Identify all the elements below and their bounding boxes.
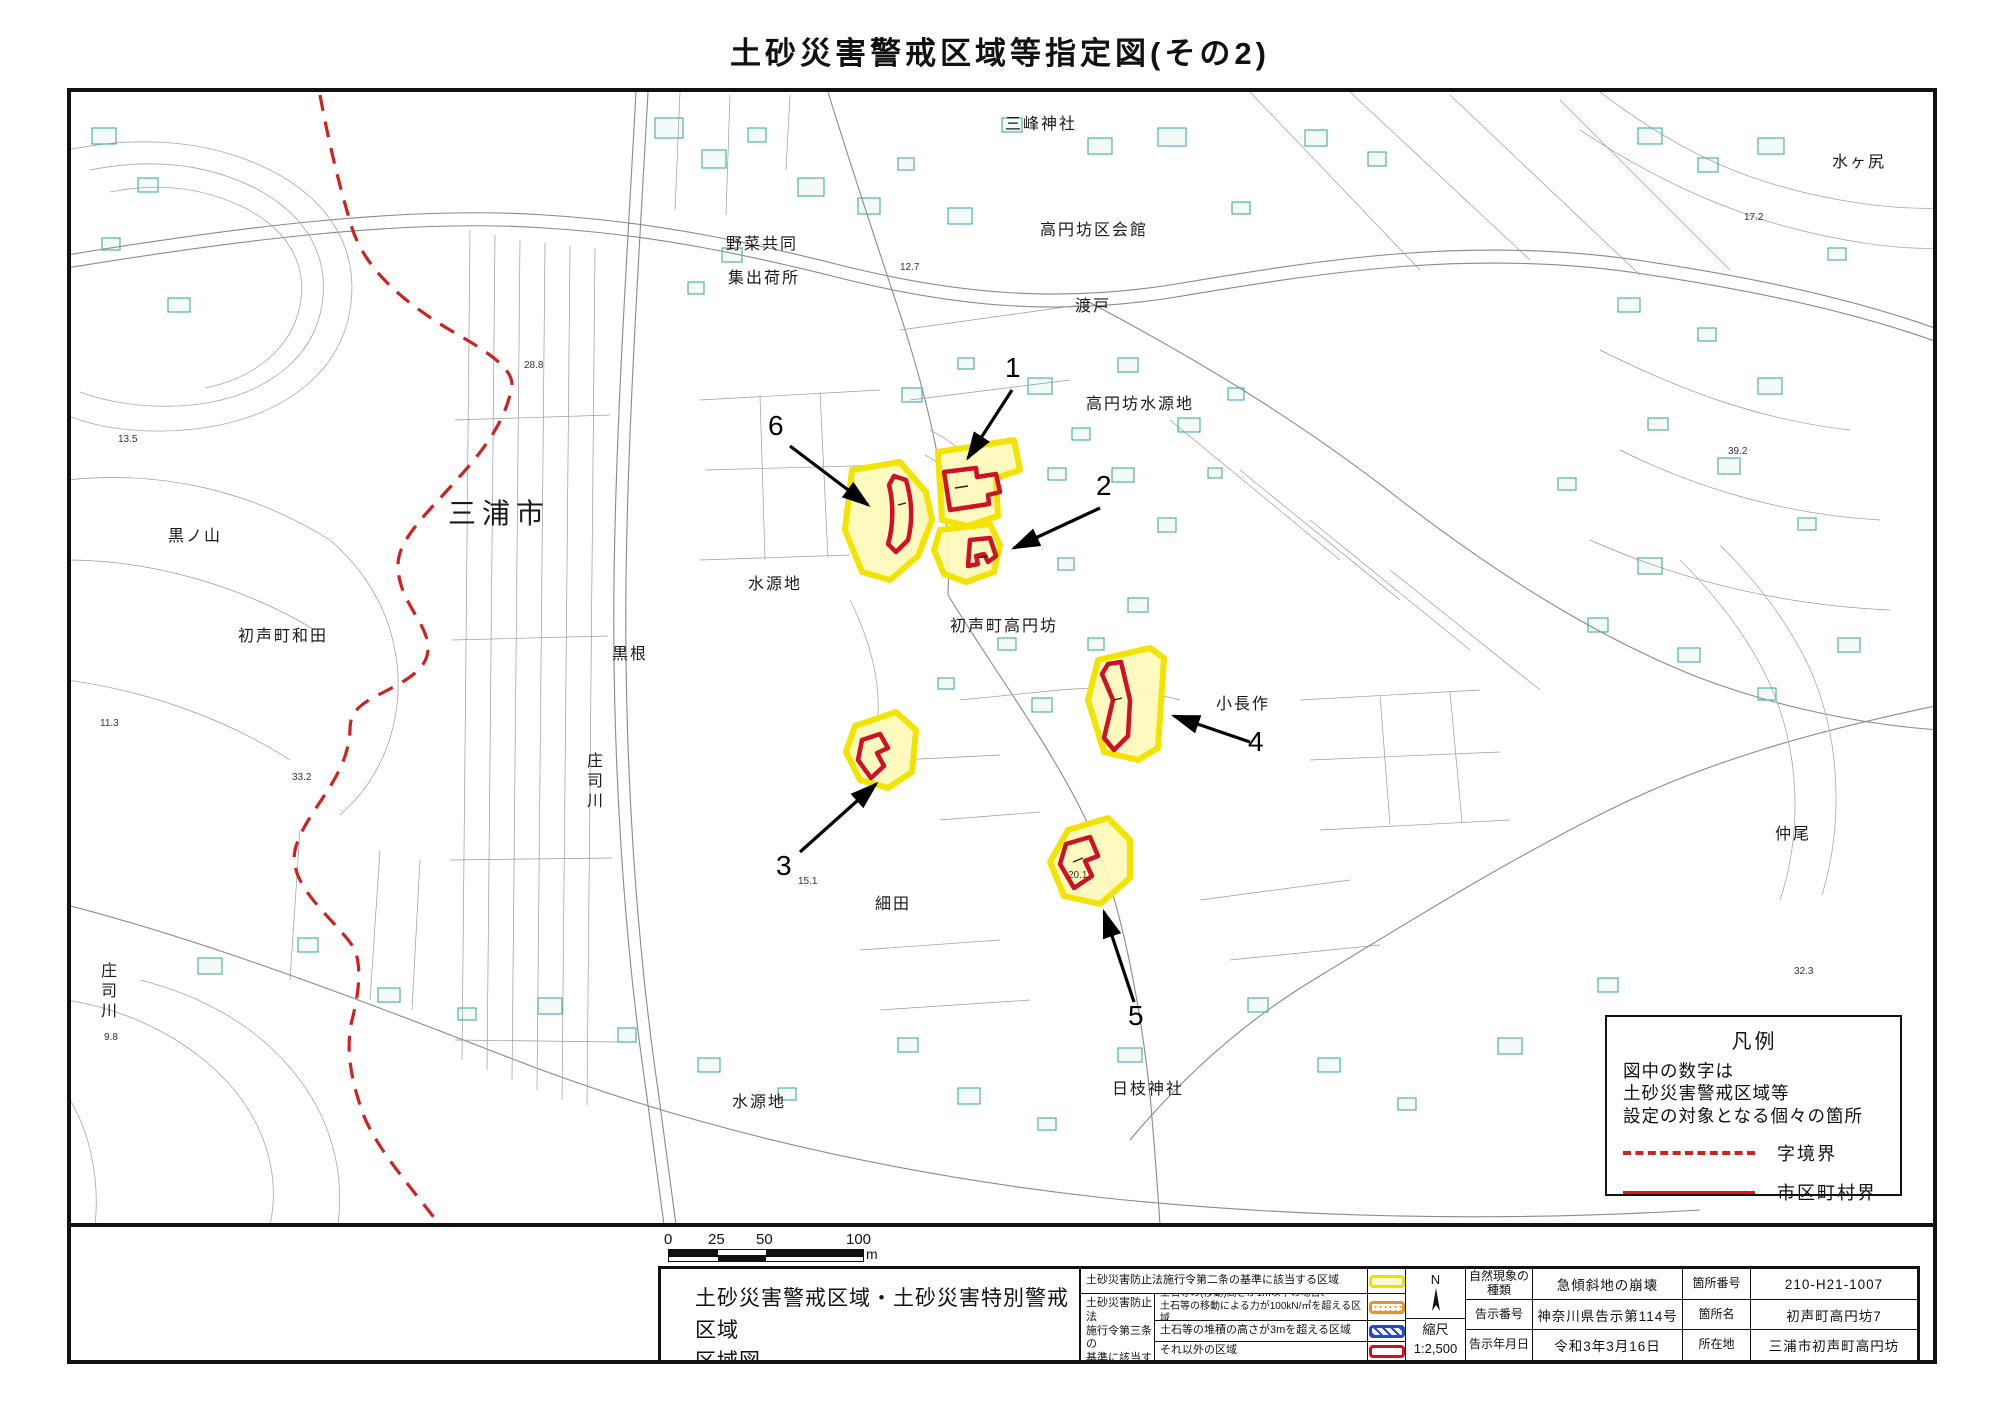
legend-law3-row3-label: それ以外の区域 bbox=[1155, 1342, 1367, 1360]
meta-label-notice-number: 告示番号 bbox=[1465, 1300, 1533, 1330]
municipal-boundary-label: 市区町村界 bbox=[1777, 1179, 1877, 1205]
orange-dotted-swatch bbox=[1369, 1301, 1405, 1314]
legend-law3-row1-label: 土石等の(移動)高さが1m以下の場合、 土石等の移動による力が100kN/㎡を超… bbox=[1155, 1294, 1367, 1321]
aza-boundary-label: 字境界 bbox=[1777, 1140, 1837, 1166]
spot-elevation: 9.8 bbox=[104, 1032, 118, 1043]
map-title-cell: 土砂災害警戒区域・土砂災害特別警戒区域 区域図 bbox=[661, 1269, 1081, 1360]
place-label-kuronoyama: 黒ノ山 bbox=[168, 522, 222, 546]
title-block-table: 土砂災害警戒区域・土砂災害特別警戒区域 区域図 土砂災害防止法施行令第二条の基準… bbox=[658, 1266, 1920, 1363]
legend-law2-swatch-cell bbox=[1367, 1269, 1405, 1294]
legend-law3-row3-swatch-cell bbox=[1367, 1342, 1405, 1360]
legend-law3-row1-swatch-cell bbox=[1367, 1294, 1405, 1321]
spot-elevation: 32.3 bbox=[1794, 966, 1813, 977]
scale-tick-50: 50 bbox=[756, 1231, 773, 1248]
meta-value-site-number: 210-H21-1007 bbox=[1751, 1269, 1917, 1300]
place-label-miura-shi: 三浦市 bbox=[448, 492, 550, 532]
place-label-nakao: 仲尾 bbox=[1775, 820, 1811, 844]
legend-title: 凡例 bbox=[1623, 1025, 1886, 1054]
zone-marker-1: 1 bbox=[1005, 352, 1021, 384]
place-label-hassemachi-wada: 初声町和田 bbox=[238, 622, 328, 646]
spot-elevation: 28.8 bbox=[524, 360, 543, 371]
spot-elevation: 11.3 bbox=[100, 718, 119, 729]
place-label-suigenchi-mid: 水源地 bbox=[748, 570, 802, 594]
page-title: 土砂災害警戒区域等指定図(その2) bbox=[0, 28, 2000, 73]
spot-elevation: 39.2 bbox=[1728, 446, 1747, 457]
place-label-kurone: 黒根 bbox=[612, 640, 648, 664]
legend-law3-group-label: 土砂災害防止法 施行令第三条の 基準に該当する 区域 bbox=[1081, 1294, 1155, 1360]
map-title-line1: 土砂災害警戒区域・土砂災害特別警戒区域 bbox=[695, 1283, 1079, 1346]
spot-elevation: 15.1 bbox=[798, 876, 817, 887]
legend-note-line3: 設定の対象となる個々の箇所 bbox=[1623, 1105, 1886, 1127]
place-label-suigenchi-south: 水源地 bbox=[732, 1088, 786, 1112]
legend-law3-row2-label: 土石等の堆積の高さが3mを超える区域 bbox=[1155, 1321, 1367, 1342]
aza-boundary-dashed-line bbox=[294, 95, 512, 1223]
zone-marker-4: 4 bbox=[1248, 726, 1264, 758]
meta-label-site-name: 箇所名 bbox=[1683, 1300, 1751, 1330]
place-label-shukkajo: 集出荷所 bbox=[728, 264, 800, 288]
scale-label: 縮尺 bbox=[1422, 1321, 1448, 1339]
yellow-zone-swatch bbox=[1369, 1275, 1405, 1288]
place-label-mizugajiri: 水ヶ尻 bbox=[1832, 148, 1886, 172]
zone-marker-3: 3 bbox=[776, 850, 792, 882]
spot-elevation: 17.2 bbox=[1744, 212, 1763, 223]
aza-boundary-dashed-sample bbox=[1623, 1151, 1755, 1155]
spot-elevation: 33.2 bbox=[292, 772, 311, 783]
place-label-kouenbou-kukaikan: 高円坊区会館 bbox=[1040, 216, 1148, 240]
scale-value: 1:2,500 bbox=[1414, 1340, 1457, 1358]
zone-marker-2: 2 bbox=[1096, 470, 1112, 502]
legend-note-line1: 図中の数字は bbox=[1623, 1060, 1886, 1082]
map-legend-box: 凡例 図中の数字は 土砂災害警戒区域等 設定の対象となる個々の箇所 字境界 市区… bbox=[1605, 1015, 1902, 1196]
scale-bar-lower bbox=[668, 1256, 864, 1262]
compass-cell: N bbox=[1405, 1269, 1465, 1319]
meta-label-site-number: 箇所番号 bbox=[1683, 1269, 1751, 1300]
map-sheet: 土砂災害警戒区域等指定図(その2) bbox=[0, 0, 2000, 1414]
scale-cell: 縮尺 1:2,500 bbox=[1405, 1319, 1465, 1360]
scale-bar-upper bbox=[668, 1249, 864, 1256]
meta-label-location: 所在地 bbox=[1683, 1330, 1751, 1360]
scale-tick-25: 25 bbox=[708, 1231, 725, 1248]
meta-value-phenomenon: 急傾斜地の崩壊 bbox=[1533, 1269, 1683, 1300]
spot-elevation: 13.5 bbox=[118, 434, 137, 445]
zone-marker-5: 5 bbox=[1128, 1000, 1144, 1032]
place-label-kouenbou-suigenchi: 高円坊水源地 bbox=[1086, 390, 1194, 414]
place-label-hosoda: 細田 bbox=[875, 890, 911, 914]
blue-hatched-swatch bbox=[1369, 1325, 1405, 1338]
north-arrow-icon bbox=[1428, 1287, 1444, 1313]
place-label-watado: 渡戸 bbox=[1075, 292, 1111, 316]
meta-value-notice-date: 令和3年3月16日 bbox=[1533, 1330, 1683, 1360]
place-label-mitsumine-jinja: 三峰神社 bbox=[1005, 110, 1077, 134]
meta-value-location: 三浦市初声町高円坊 bbox=[1751, 1330, 1917, 1360]
legend-law3-row2-swatch-cell bbox=[1367, 1321, 1405, 1342]
spot-elevation: 12.7 bbox=[900, 262, 919, 273]
place-label-yasai-kyodo: 野菜共同 bbox=[726, 230, 798, 254]
meta-value-notice-number: 神奈川県告示第114号 bbox=[1533, 1300, 1683, 1330]
scale-tick-0: 0 bbox=[664, 1231, 672, 1248]
meta-label-notice-date: 告示年月日 bbox=[1465, 1330, 1533, 1360]
place-label-shojigawa-mid: 庄司川 bbox=[580, 752, 604, 812]
place-label-shojigawa-sw: 庄司川 bbox=[94, 962, 118, 1022]
compass-n-label: N bbox=[1431, 1272, 1440, 1287]
place-label-konagasaku: 小長作 bbox=[1216, 690, 1270, 714]
red-outline-swatch bbox=[1369, 1345, 1405, 1358]
spot-elevation: 20.1 bbox=[1068, 870, 1087, 881]
municipal-boundary-solid-sample bbox=[1623, 1191, 1755, 1194]
place-label-hie-jinja: 日枝神社 bbox=[1112, 1075, 1184, 1099]
scale-unit-label: m bbox=[866, 1246, 878, 1262]
map-title-line2: 区域図 bbox=[695, 1346, 1079, 1360]
meta-label-phenomenon: 自然現象の種類 bbox=[1465, 1269, 1533, 1300]
zone-marker-6: 6 bbox=[768, 410, 784, 442]
zone-hatch-ticks bbox=[898, 486, 1122, 862]
place-label-hassemachi-kouenbou: 初声町高円坊 bbox=[950, 612, 1058, 636]
legend-note-line2: 土砂災害警戒区域等 bbox=[1623, 1082, 1886, 1104]
meta-value-site-name: 初声町高円坊7 bbox=[1751, 1300, 1917, 1330]
legend-law2-label: 土砂災害防止法施行令第二条の基準に該当する区域 bbox=[1081, 1269, 1367, 1294]
scale-bar: 0 25 50 100 m bbox=[660, 1231, 890, 1263]
